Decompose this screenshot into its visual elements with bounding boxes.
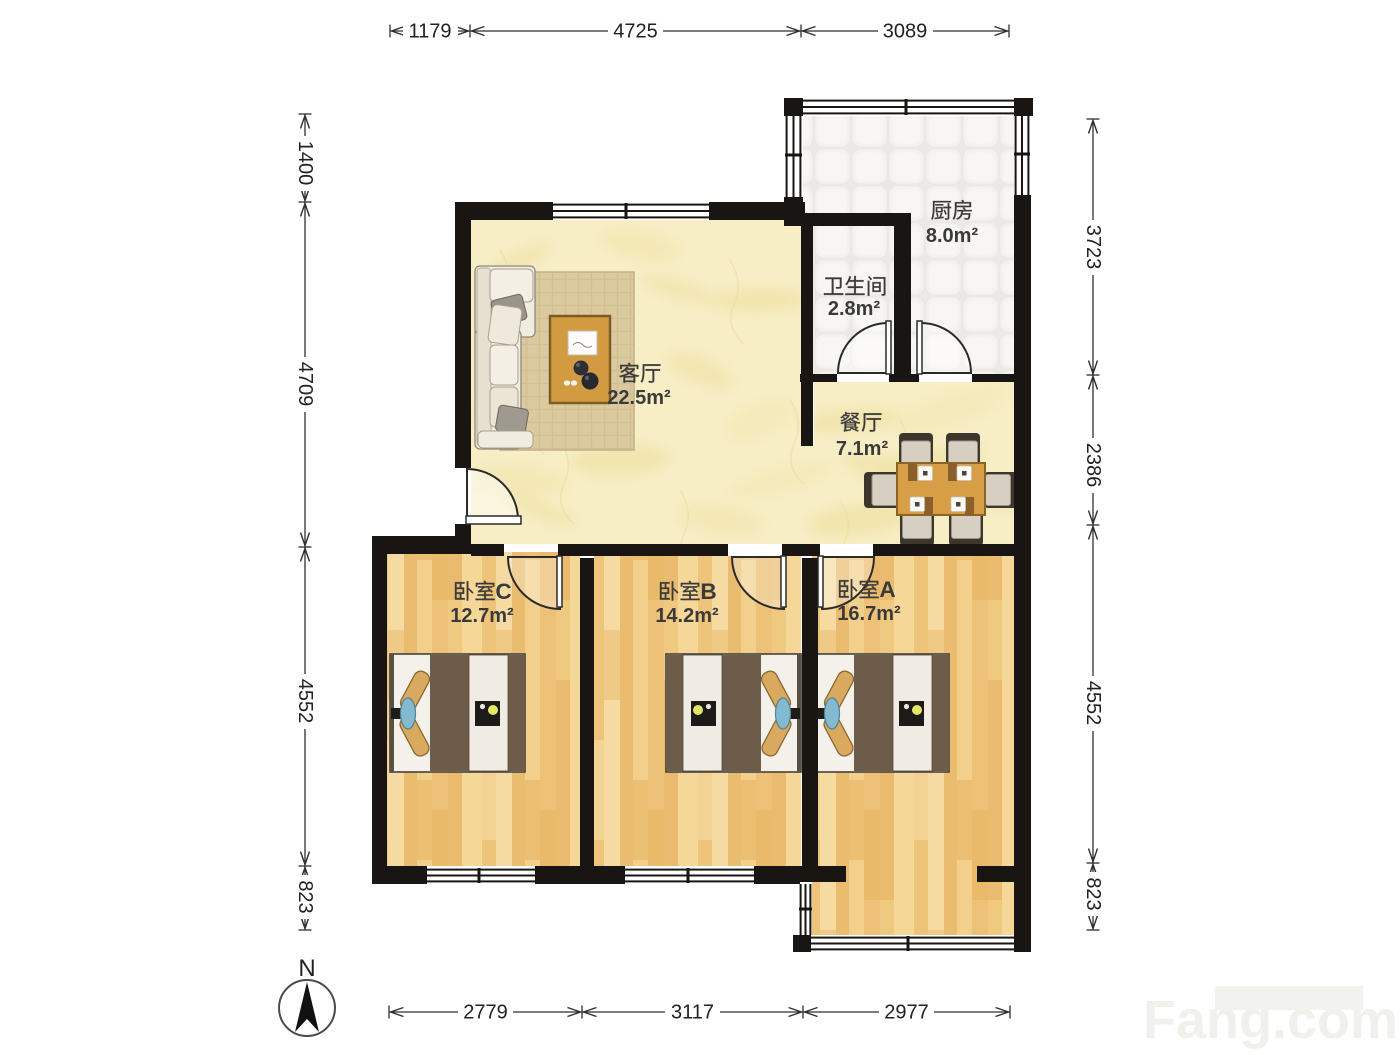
svg-text:3117: 3117	[671, 1002, 714, 1024]
svg-text:2977: 2977	[884, 1002, 929, 1024]
svg-text:22.5m²: 22.5m²	[607, 387, 671, 409]
svg-text:14.2m²: 14.2m²	[655, 605, 719, 627]
svg-text:16.7m²: 16.7m²	[837, 603, 901, 625]
svg-text:8.0m²: 8.0m²	[926, 225, 979, 247]
svg-text:C: C	[495, 579, 511, 604]
svg-text:4709: 4709	[294, 362, 316, 407]
svg-text:2779: 2779	[463, 1002, 508, 1024]
svg-text:7.1m²: 7.1m²	[836, 438, 889, 460]
svg-text:4552: 4552	[294, 679, 316, 724]
svg-text:1400: 1400	[294, 141, 316, 186]
svg-text:N: N	[298, 955, 315, 982]
svg-text:1179: 1179	[408, 21, 451, 43]
svg-text:4725: 4725	[613, 21, 658, 43]
svg-text:823: 823	[1082, 877, 1104, 910]
svg-text:2386: 2386	[1082, 443, 1104, 488]
svg-text:12.7m²: 12.7m²	[450, 605, 514, 627]
svg-text:3723: 3723	[1082, 225, 1104, 270]
svg-text:3089: 3089	[883, 21, 928, 43]
svg-text:823: 823	[294, 880, 316, 913]
svg-text:B: B	[700, 579, 716, 604]
svg-text:4552: 4552	[1082, 681, 1104, 726]
svg-text:A: A	[879, 577, 895, 602]
svg-text:2.8m²: 2.8m²	[828, 298, 881, 320]
